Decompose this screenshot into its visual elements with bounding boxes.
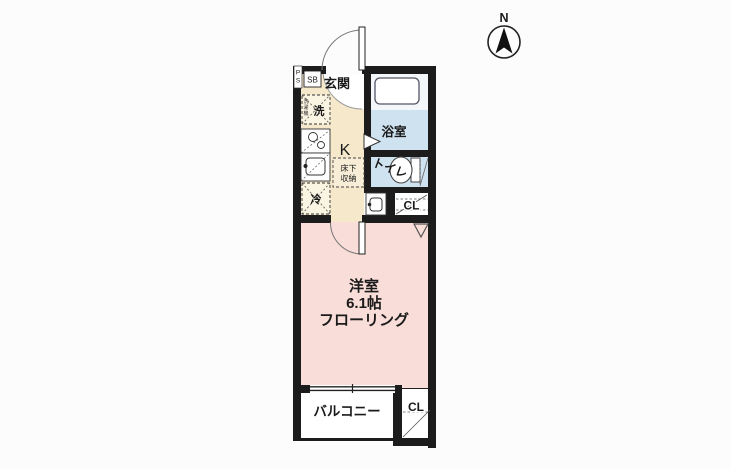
floor-plan: N 玄関 SB PS 洗 洗濯機 K 床下収納 冷 浴室 トイレ CL 洋室 6… [0,0,730,470]
wall-basin-closet [386,193,395,215]
room-door-leaf [359,222,365,254]
label-western-room: 洋室 [349,277,379,295]
label-kitchen: K [340,142,351,159]
label-washer-vertical: 洗濯機 [303,98,308,117]
wall-hall-bath [364,74,371,193]
label-closet-lower: CL [408,400,424,414]
label-bathroom: 浴室 [381,124,407,139]
label-closet-upper: CL [404,199,420,213]
label-flooring: フローリング [319,311,409,329]
label-balcony: バルコニー [313,404,380,419]
balcony-railing [293,438,402,441]
label-pipe-space: PS [296,70,301,85]
washbasin-faucet [368,203,372,207]
wall-hall-room-right [362,215,436,223]
wall-right [428,66,436,448]
compass-north-label: N [499,11,508,25]
wall-left [293,66,301,441]
label-entrance: 玄関 [324,76,350,91]
bathtub [375,78,419,104]
wall-toilet-closet [364,187,436,193]
label-fridge: 冷 [311,192,322,206]
floor-plan-canvas: N 玄関 SB PS 洗 洗濯機 K 床下収納 冷 浴室 トイレ CL 洋室 6… [0,0,730,470]
window-room-balcony [310,384,395,393]
label-shoe-box: SB [307,76,318,85]
washbasin-sink [370,198,382,211]
label-washer: 洗 [314,104,325,118]
wall-room-balcony-left [293,385,310,393]
label-room-size: 6.1帖 [346,294,382,312]
entrance-door-leaf [359,27,365,70]
wall-hall-room-left [293,215,331,223]
kitchen-faucet [304,164,308,168]
wall-top-right [362,66,436,74]
